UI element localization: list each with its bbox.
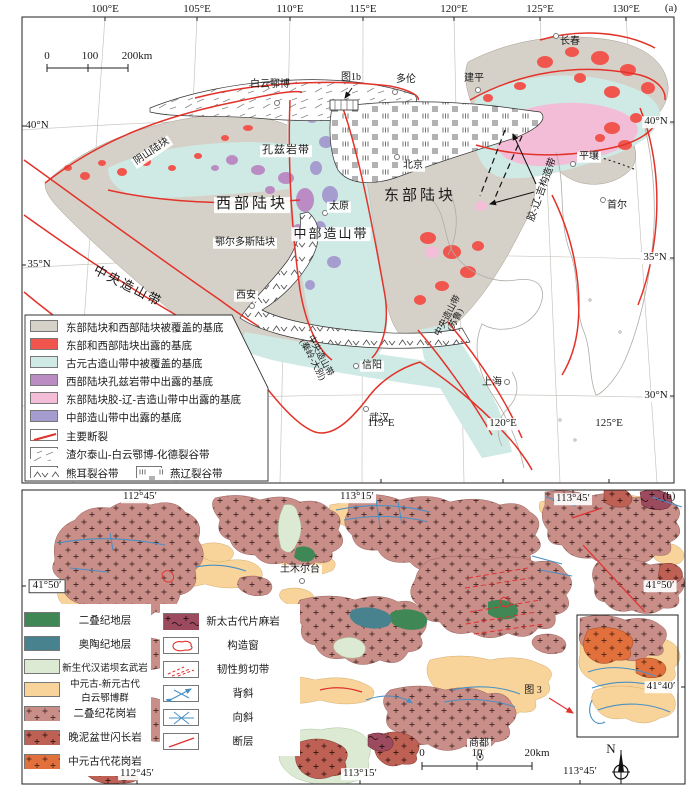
legend-b-swatch-anticline <box>163 685 199 702</box>
tectonic-window-icon <box>164 638 199 654</box>
b-lat-right-4150: 41°50′ <box>644 580 677 592</box>
b-axis-bottom-11345: 113°45′ <box>561 766 599 778</box>
a-lat-left-40n: 40°N <box>25 120 48 132</box>
legend-a-swatch-khondalite <box>30 374 58 386</box>
legend-b-label-diorite: 晚泥盆世闪长岩 <box>68 730 142 745</box>
legend-a-label-xionger: 熊耳裂谷带 <box>66 466 119 481</box>
region-label-eastern-block: 东部陆块 <box>384 189 456 205</box>
legend-b-label-permian-granite: 二叠纪花岗岩 <box>74 706 137 721</box>
b-scale-0: 0 <box>419 748 425 760</box>
b-axis-top-11245: 112°45′ <box>121 491 159 503</box>
a-axis-top-100e: 100°E <box>91 4 119 16</box>
city-label-shanghai: 上海 <box>482 378 502 389</box>
bayan-obo-group-line1: 中元古-新元古代 <box>70 676 140 690</box>
figure-root: 100°E 105°E 110°E 115°E 120°E 125°E 130°… <box>0 0 700 786</box>
legend-b-label-bayan-obo-group: 中元古-新元古代 白云鄂博群 <box>70 676 140 704</box>
legend-a-swatch-cyan <box>30 356 58 368</box>
legend-b-swatch-ordovician <box>24 636 60 651</box>
legend-b-swatch-shear-zone <box>163 661 199 678</box>
a-axis-top-125e: 125°E <box>526 4 554 16</box>
a-axis-top-115e: 115°E <box>349 4 376 16</box>
inset-3-ref-label: 图 3 <box>524 686 542 697</box>
city-label-xian: 西安 <box>234 291 258 302</box>
inset-1b-ref-label: 图1b <box>341 73 361 84</box>
legend-a-label-rift1: 渣尔泰山-白云鄂博-化德裂谷带 <box>66 447 210 462</box>
legend-a-label-jlj: 东部陆块胶-辽-吉造山带中出露的基底 <box>66 392 241 407</box>
gneiss-pattern-icon <box>164 614 199 630</box>
city-label-taiyuan: 太原 <box>327 202 351 213</box>
legend-a-swatch-xionger <box>30 466 58 478</box>
legend-b-label-tectonic-window: 构造窗 <box>227 638 259 653</box>
region-label-qinling-dabie: 中央造山带 (秦岭-大别) <box>297 334 335 383</box>
region-label-central-orogenic-belt: 中央造山带 <box>91 263 164 309</box>
diorite-pattern-icon <box>25 731 60 745</box>
legend-b-swatch-gneiss <box>163 613 199 630</box>
b-axis-top-11345: 113°45′ <box>554 493 592 505</box>
legend-a-label-yanliao: 燕辽裂谷带 <box>170 466 223 481</box>
a-lat-left-35n: 35°N <box>27 259 50 271</box>
region-label-yinshan: 阴山陆块 <box>131 135 173 168</box>
legend-a-label-khondalite: 西部陆块孔兹岩带中出露的基底 <box>66 374 213 389</box>
city-label-changchun: 长春 <box>560 37 580 48</box>
legend-b-swatch-bayan-obo-group <box>24 682 60 697</box>
a-scale-0: 0 <box>44 51 50 63</box>
legend-a-swatch-rift1 <box>30 447 58 459</box>
meso-granite-pattern-icon <box>25 755 60 769</box>
fault-line-icon <box>31 431 59 443</box>
region-label-western-block: 西部陆块 <box>214 197 290 213</box>
labels-layer: 100°E 105°E 110°E 115°E 120°E 125°E 130°… <box>0 0 700 786</box>
region-label-khondalite-belt: 孔兹岩带 <box>260 145 312 157</box>
a-axis-top-110e: 110°E <box>276 4 303 16</box>
legend-a-label-exposed: 东部和西部陆块出露的基底 <box>66 338 192 353</box>
permian-granite-pattern-icon <box>25 707 60 721</box>
legend-b-swatch-basalt <box>24 659 60 674</box>
a-lat-right-35n: 35°N <box>641 252 668 264</box>
city-label-jianping: 建平 <box>464 74 484 85</box>
legend-a-label-lavender: 中部造山带中出露的基底 <box>66 410 182 425</box>
legend-a-swatch-lavender <box>30 410 58 422</box>
legend-a-swatch-exposed <box>30 338 58 350</box>
legend-a-label-fault: 主要断裂 <box>66 429 108 444</box>
b-axis-top-11315: 113°15′ <box>338 491 376 503</box>
rift-dash-icon <box>31 449 59 461</box>
legend-a-swatch-yanliao <box>136 466 162 478</box>
legend-b-swatch-meso-granite <box>24 754 60 769</box>
a-axis-bottom-125e: 125°E <box>593 418 625 430</box>
legend-b-label-meso-granite: 中元古代花岗岩 <box>68 754 142 769</box>
legend-b-swatch-tectonic-window <box>163 637 199 654</box>
legend-a-label-cyan: 古元古造山带中被覆盖的基底 <box>66 356 203 371</box>
legend-b-swatch-diorite <box>24 730 60 745</box>
a-scale-100: 100 <box>82 51 99 63</box>
b-axis-bottom-11245: 112°45′ <box>118 768 156 780</box>
city-label-xinyang: 信阳 <box>360 361 384 372</box>
legend-b-label-shear-zone: 韧性剪切带 <box>217 662 270 677</box>
a-axis-top-120e: 120°E <box>440 4 468 16</box>
region-label-jiao-liao-ji: 胶-辽-吉构造带 <box>527 157 560 223</box>
b-lat-left-4150: 41°50′ <box>29 579 66 593</box>
anticline-icon <box>164 686 199 702</box>
shear-zone-icon <box>164 662 199 678</box>
city-label-wuhan: 武汉 <box>369 414 389 425</box>
a-axis-bottom-120e: 120°E <box>487 418 519 430</box>
a-lat-right-40n: 40°N <box>642 116 669 128</box>
b-axis-bottom-11315: 113°15′ <box>341 768 379 780</box>
legend-a-swatch-jlj <box>30 392 58 404</box>
legend-a-swatch-covered <box>30 320 58 332</box>
b-scale-20km: 20km <box>524 748 549 760</box>
chevron-pattern-icon <box>31 468 59 480</box>
legend-b-label-ordovician: 奥陶纪地层 <box>79 637 132 652</box>
fault-icon <box>164 734 199 750</box>
legend-a-swatch-fault <box>30 429 58 441</box>
city-label-seoul: 首尔 <box>605 201 629 212</box>
legend-b-swatch-syncline <box>163 709 199 726</box>
town-label-tumuertai: 土木尔台 <box>278 565 322 576</box>
region-label-ordos: 鄂尔多斯陆块 <box>213 238 277 249</box>
city-label-pyongyang: 平壤 <box>577 152 601 163</box>
legend-b-label-syncline: 向斜 <box>233 710 254 725</box>
legend-b-label-basalt: 新生代汉诺坝玄武岩 <box>62 660 148 674</box>
a-axis-top-105e: 105°E <box>183 4 211 16</box>
a-lat-right-30n: 30°N <box>642 390 669 402</box>
bayan-obo-group-line2: 白云鄂博群 <box>70 690 140 704</box>
b-lat-right-4140: 41°40′ <box>645 681 678 693</box>
legend-b-label-anticline: 背斜 <box>233 686 254 701</box>
legend-b-label-permian-strata: 二叠纪地层 <box>79 613 132 628</box>
legend-a-label-covered: 东部陆块和西部陆块被覆盖的基底 <box>66 320 224 335</box>
legend-b-label-gneiss: 新太古代片麻岩 <box>206 614 280 629</box>
city-label-baiyun-obo: 白云鄂博 <box>250 80 290 91</box>
legend-b-swatch-permian-strata <box>24 612 60 627</box>
b-scale-10: 10 <box>472 748 483 760</box>
legend-b-swatch-permian-granite <box>24 706 60 721</box>
grid-pattern-icon <box>137 468 163 480</box>
city-label-beijing: 北京 <box>401 161 425 172</box>
syncline-icon <box>164 710 199 726</box>
a-scale-200km: 200km <box>122 51 153 63</box>
compass-n-label: N <box>606 742 617 756</box>
panel-a-tag: (a) <box>665 3 677 15</box>
region-label-sulu: 中央造山带 (苏鲁) <box>433 294 471 343</box>
city-label-duolun: 多伦 <box>396 75 416 86</box>
region-label-central-orogen: 中部造山带 <box>291 227 370 241</box>
panel-b-tag: (b) <box>663 491 676 503</box>
legend-b-label-fault: 断层 <box>233 734 254 749</box>
a-axis-top-130e: 130°E <box>612 4 640 16</box>
legend-b-swatch-fault <box>163 733 199 750</box>
